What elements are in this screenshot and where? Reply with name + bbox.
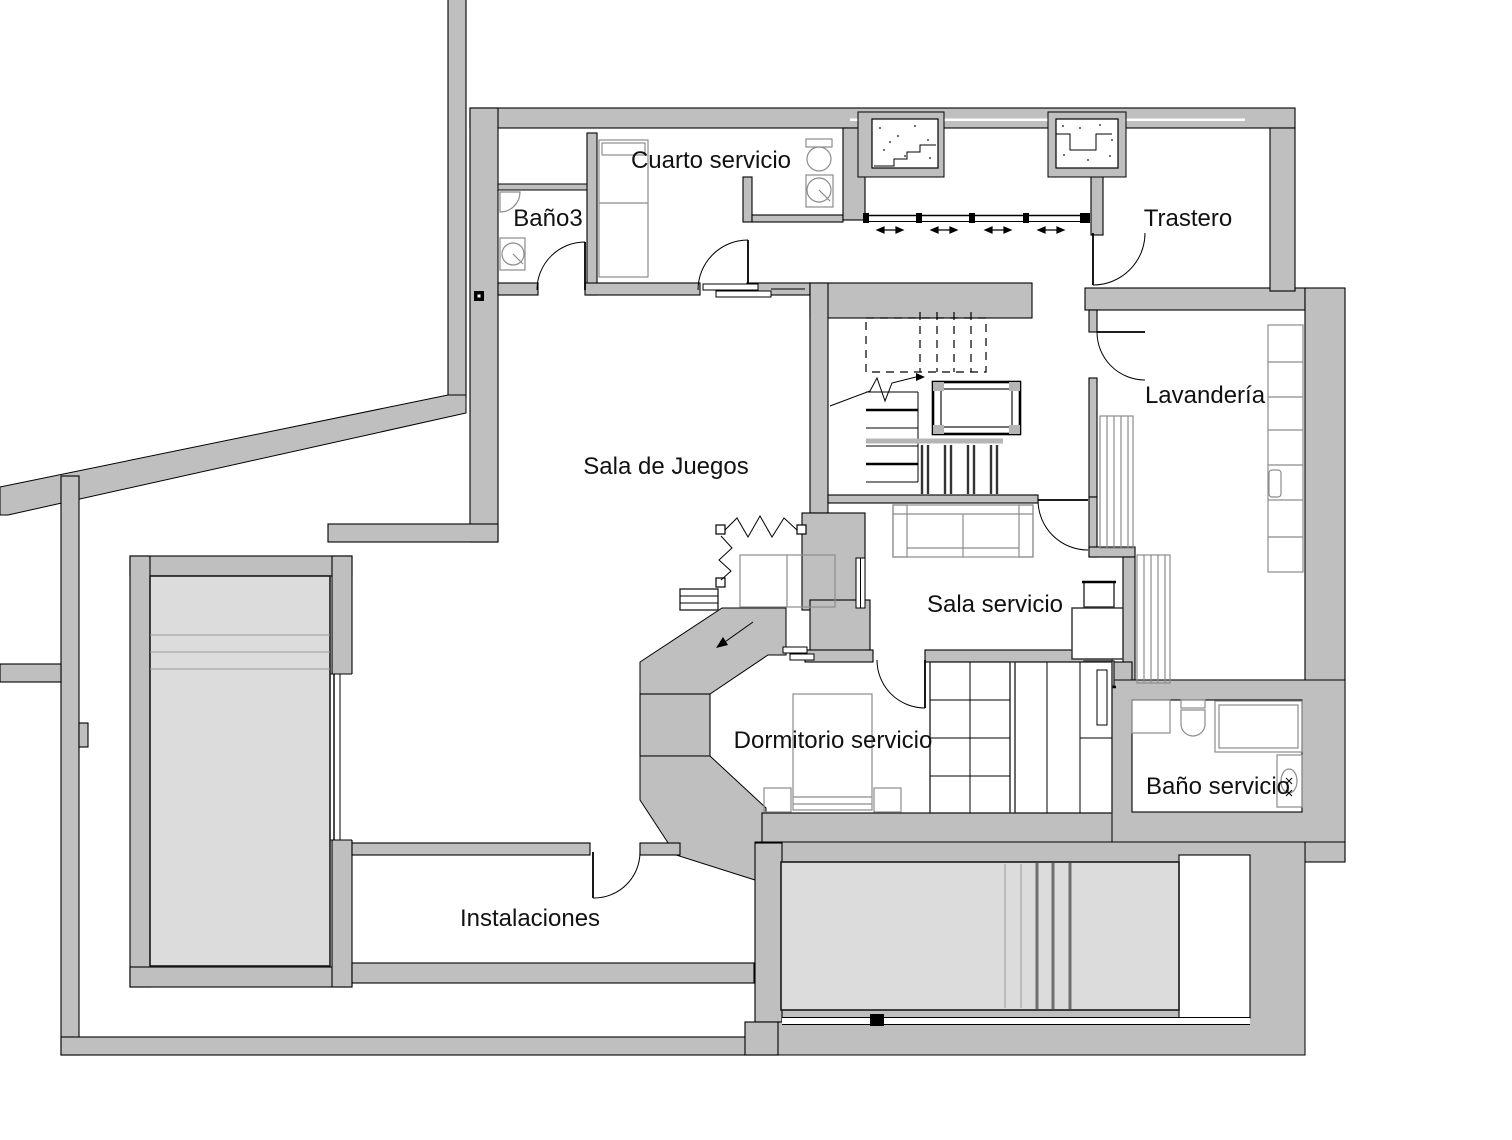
arrowhead (916, 373, 925, 381)
window-post (969, 213, 975, 223)
cabinet (680, 589, 718, 610)
sofa-icon (893, 505, 1033, 557)
wall (130, 556, 150, 987)
room-label-dormitorio-servicio: Dormitorio servicio (734, 727, 933, 754)
door-dormitorio (877, 660, 925, 708)
room-label-sala-servicio: Sala servicio (927, 591, 1063, 618)
bifold-door (719, 536, 732, 580)
elevator (933, 382, 1020, 434)
window-post (1023, 213, 1029, 223)
wall-left (470, 108, 498, 542)
wall (1089, 378, 1097, 497)
laundry-counter (1268, 325, 1303, 572)
wall-partition (498, 184, 587, 190)
door-banio3 (537, 242, 585, 290)
stairs-balusters (922, 445, 997, 494)
room-label-cuarto-servicio: Cuarto servicio (631, 147, 791, 174)
wall (352, 843, 590, 855)
room-label-sala-de-juegos: Sala de Juegos (583, 453, 748, 480)
toilet-tank (806, 139, 832, 147)
door-trastero (1093, 233, 1145, 285)
wall-partition (587, 133, 597, 295)
window-pool (330, 674, 354, 840)
wall (585, 283, 700, 295)
wall (640, 694, 710, 756)
drying-rack-icon (1137, 555, 1170, 683)
lightwell (1056, 119, 1118, 168)
wall (448, 0, 466, 398)
wall (328, 524, 498, 542)
wall (61, 1037, 778, 1055)
wall (1270, 128, 1295, 291)
lightwell (872, 119, 938, 168)
floor-plan-page: Cuarto servicio Baño3 Trastero Sala de J… (0, 0, 1512, 1140)
wall-partition (743, 177, 752, 222)
wardrobe-icon (930, 662, 1010, 813)
door-lavanderia (1097, 332, 1145, 380)
door-cuarto-servicio (698, 240, 748, 290)
wall (332, 556, 352, 676)
wall (0, 664, 61, 682)
wall (130, 556, 352, 576)
room-label-banio3: Baño3 (513, 205, 582, 232)
wall (755, 843, 782, 1022)
utility-marker-dot (478, 295, 481, 298)
wardrobe-icon (1015, 662, 1112, 813)
diagonal-wall (640, 756, 766, 880)
ramp-zone (781, 855, 1250, 1026)
stairs-treads (866, 392, 918, 482)
diagonal-wall (640, 608, 786, 694)
window-slide-arrow-icon (877, 227, 1064, 233)
toilet-icon (807, 147, 831, 171)
room-label-instalaciones: Instalaciones (460, 905, 600, 932)
nightstand (764, 788, 791, 812)
room-label-banio-servicio: Baño servicio (1146, 773, 1290, 800)
wall (640, 843, 680, 855)
wall (810, 283, 1032, 318)
pocket-door (783, 647, 814, 660)
wall (498, 283, 538, 295)
window-post (863, 213, 869, 223)
wall (332, 838, 352, 987)
window-post (1080, 213, 1090, 223)
pool-room (150, 576, 330, 966)
wall (1091, 175, 1103, 235)
elevator-shaft (933, 382, 1020, 434)
stairs-above-outline (866, 318, 986, 372)
wall (745, 1022, 778, 1055)
room-label-trastero: Trastero (1144, 205, 1232, 232)
wall (810, 283, 828, 513)
window-post (916, 213, 922, 223)
ramp (781, 862, 1179, 1010)
wall (352, 963, 754, 983)
wall (828, 495, 1038, 503)
wall (130, 967, 352, 987)
wall (805, 650, 873, 662)
wall-pilaster (79, 723, 88, 747)
bifold-door (725, 516, 797, 537)
door-instalaciones (593, 852, 640, 898)
wall (61, 476, 79, 1055)
laundry-sink-icon (1269, 470, 1281, 497)
nightstand (874, 788, 901, 812)
door-sala-servicio (1038, 500, 1088, 550)
drying-rack-icon (1100, 416, 1133, 548)
room-label-lavanderia: Lavandería (1145, 382, 1266, 409)
wall (1089, 310, 1097, 332)
gate-marker (870, 1014, 884, 1026)
floor-plan: Cuarto servicio Baño3 Trastero Sala de J… (0, 0, 1512, 1140)
wall (752, 215, 843, 222)
window-hatch (856, 558, 865, 608)
landing (1179, 855, 1250, 1018)
chair-icon (1084, 582, 1114, 607)
